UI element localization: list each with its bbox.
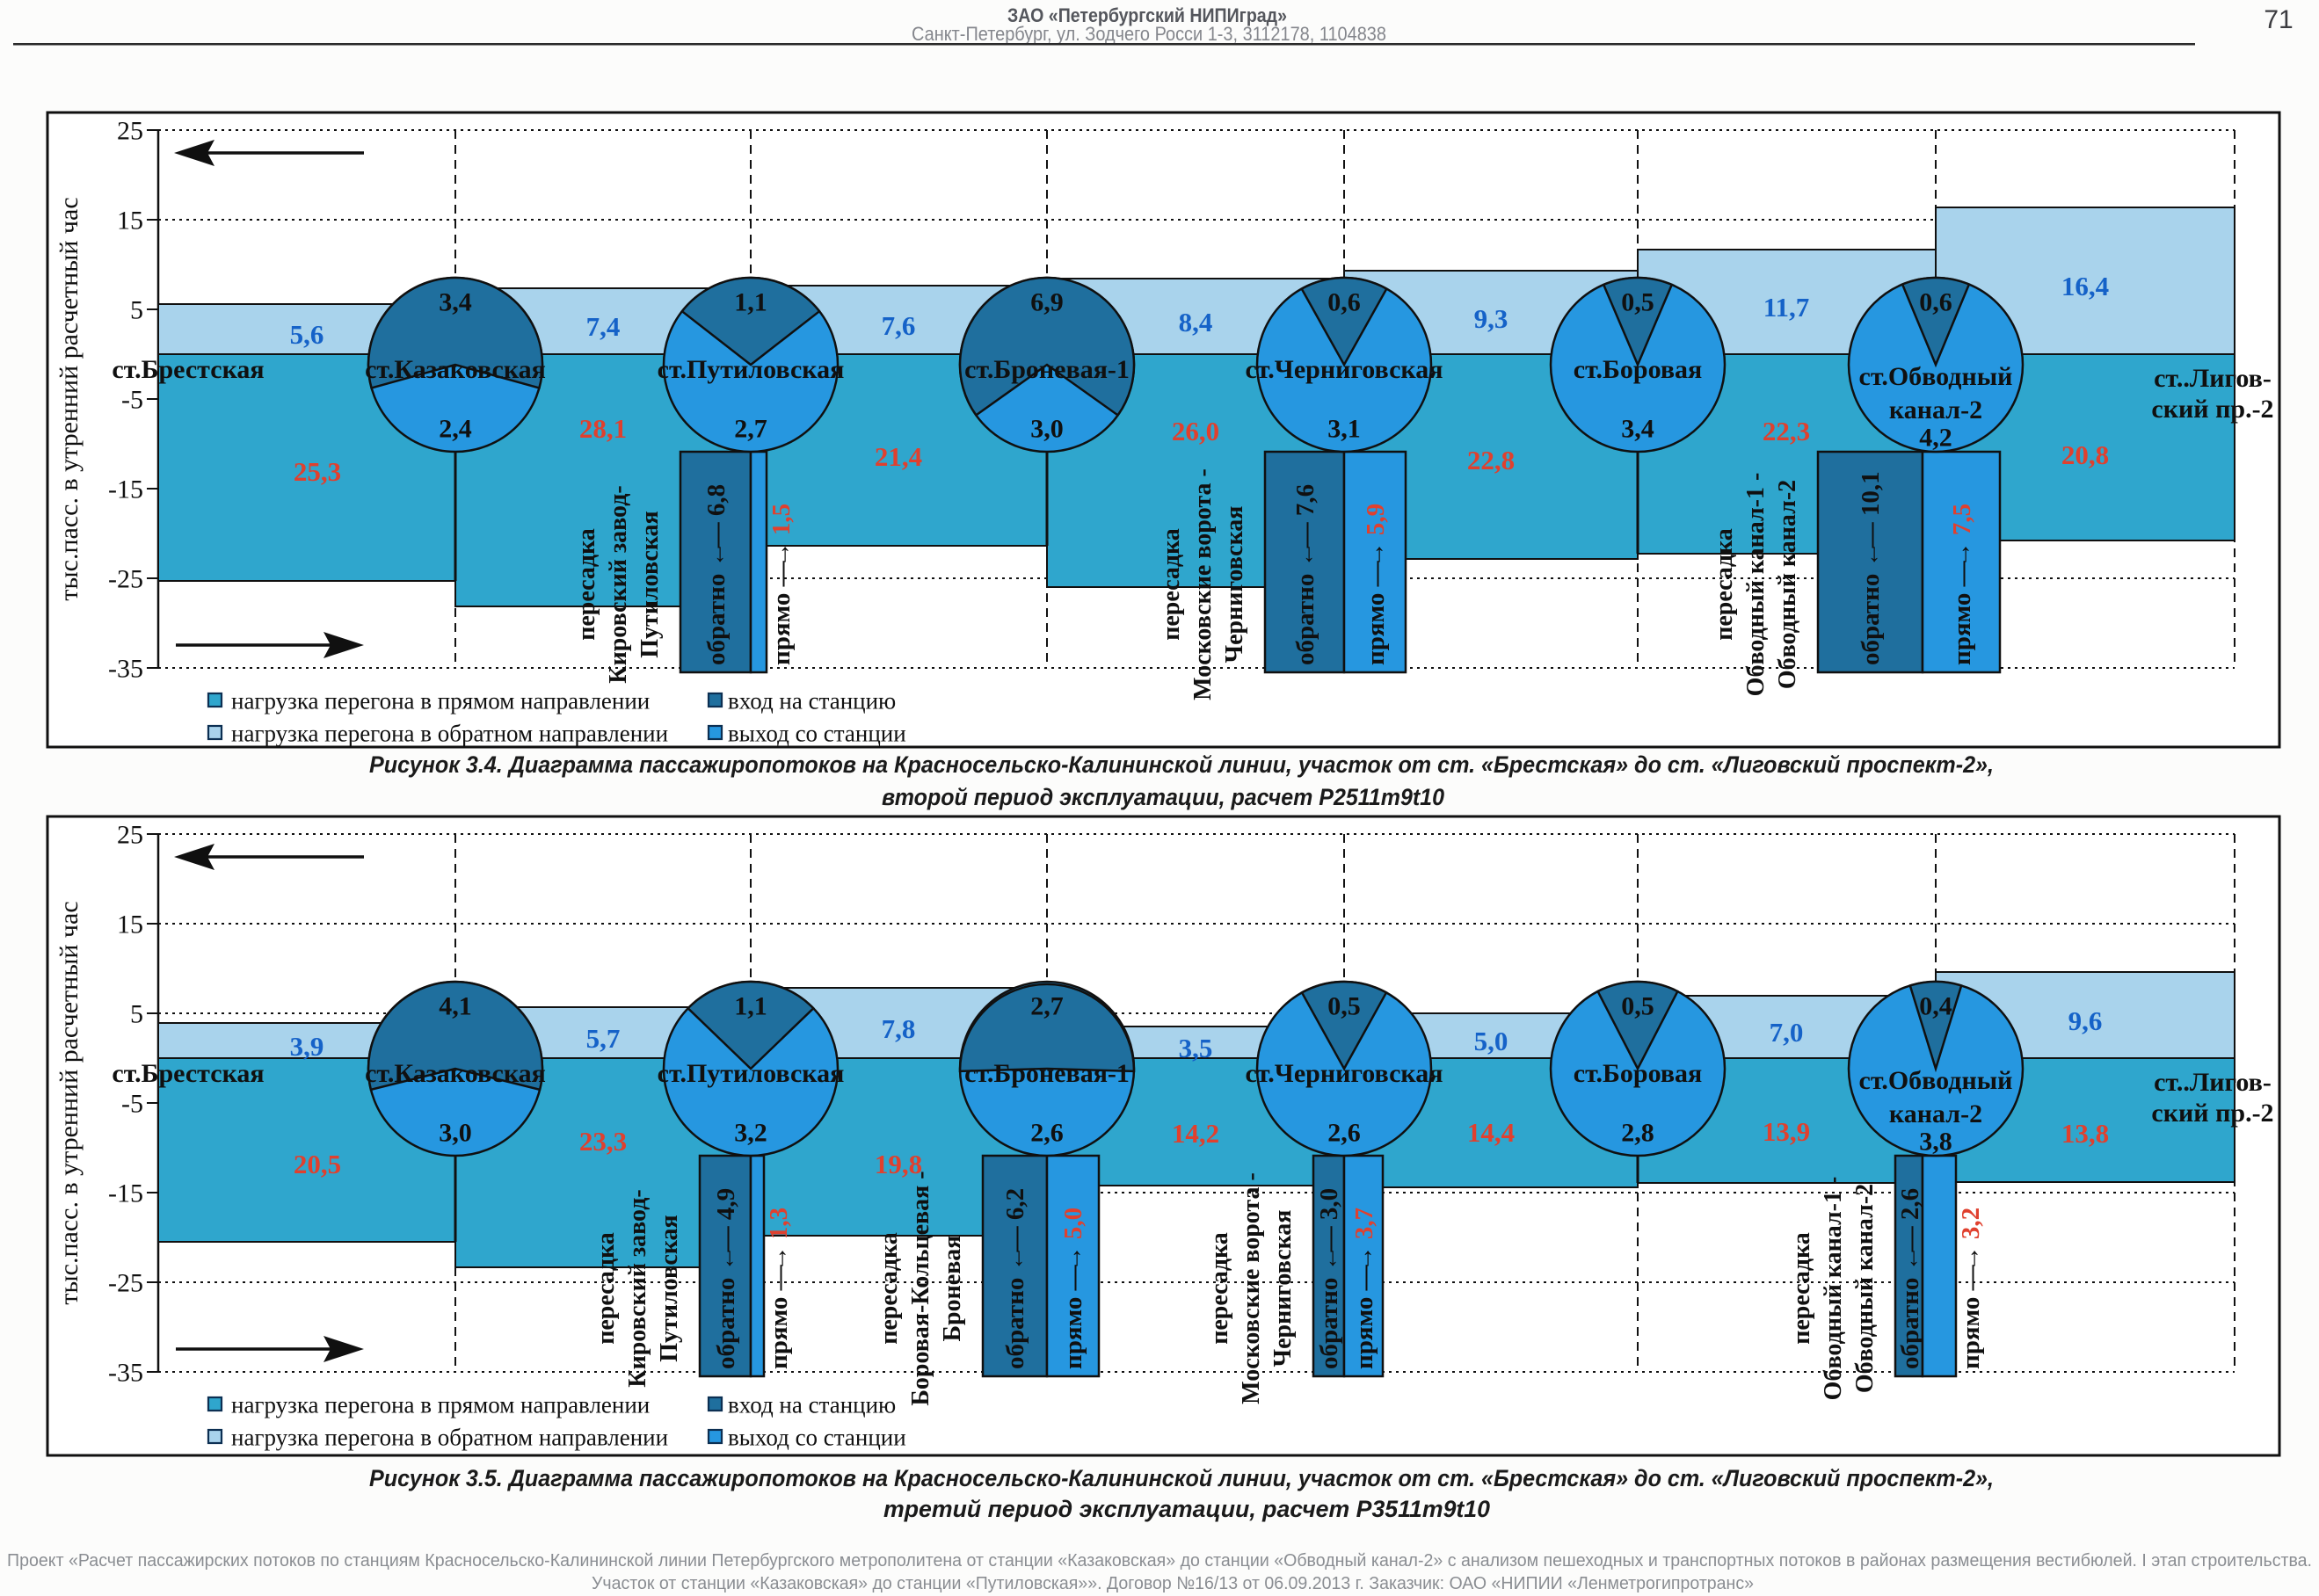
svg-text:20,5: 20,5 [294, 1149, 341, 1179]
svg-text:нагрузка перегона в прямом нап: нагрузка перегона в прямом направлении [231, 687, 650, 714]
svg-text:Черниговская: Черниговская [1269, 1210, 1297, 1367]
svg-text:ст.Обводный: ст.Обводный [1859, 1066, 2013, 1095]
svg-text:ст.Боровая: ст.Боровая [1574, 1059, 1703, 1088]
svg-text:71: 71 [2264, 5, 2293, 34]
svg-text:ст.Казаковская: ст.Казаковская [365, 355, 546, 384]
svg-text:11,7: 11,7 [1763, 292, 1810, 323]
svg-text:ст.Казаковская: ст.Казаковская [365, 1059, 546, 1088]
svg-text:13,8: 13,8 [2061, 1118, 2109, 1149]
svg-text:5: 5 [130, 296, 143, 325]
svg-text:пересадка: пересадка [573, 528, 600, 641]
svg-text:2,7: 2,7 [734, 415, 767, 444]
svg-text:1,1: 1,1 [734, 992, 767, 1021]
svg-text:Боровая-Кольцевая -: Боровая-Кольцевая - [907, 1171, 934, 1405]
svg-text:нагрузка перегона в прямом нап: нагрузка перегона в прямом направлении [231, 1391, 650, 1418]
svg-text:Санкт-Петербург, ул. Зодчего Р: Санкт-Петербург, ул. Зодчего Росси 1-3, … [912, 23, 1386, 45]
svg-text:0,6: 0,6 [1327, 288, 1361, 317]
svg-text:ст..Лигов-: ст..Лигов- [2154, 1068, 2272, 1097]
svg-text:обратно ←— 7,6: обратно ←— 7,6 [1291, 484, 1319, 665]
svg-text:Проект «Расчет пассажирских по: Проект «Расчет пассажирских потоков по с… [7, 1550, 2312, 1571]
svg-text:обратно ←— 2,6: обратно ←— 2,6 [1896, 1188, 1924, 1369]
svg-text:2,7: 2,7 [1030, 992, 1064, 1021]
svg-text:пересадка: пересадка [876, 1232, 903, 1345]
svg-text:выход со станции: выход со станции [728, 1424, 906, 1450]
svg-text:-5: -5 [121, 1090, 143, 1119]
svg-text:-35: -35 [108, 655, 143, 684]
svg-text:5: 5 [130, 1000, 143, 1029]
svg-text:3,4: 3,4 [439, 288, 472, 317]
svg-text:Московские ворота -: Московские ворота - [1189, 468, 1217, 700]
svg-text:23,3: 23,3 [579, 1126, 627, 1157]
svg-text:Обводный канал-2: Обводный канал-2 [1774, 480, 1801, 689]
svg-text:25,3: 25,3 [294, 456, 341, 487]
svg-text:2,4: 2,4 [439, 415, 472, 444]
svg-text:Рисунок 3.4. Диаграмма пассажи: Рисунок 3.4. Диаграмма пассажиропотоков … [369, 751, 1994, 778]
svg-text:5,0: 5,0 [1474, 1026, 1508, 1056]
svg-text:обратно ←— 6,8: обратно ←— 6,8 [702, 484, 731, 665]
svg-text:7,4: 7,4 [586, 311, 621, 342]
svg-text:выход со станции: выход со станции [728, 720, 906, 746]
svg-text:тыс.пасс. в утренний расчетный: тыс.пасс. в утренний расчетный час [55, 197, 84, 600]
svg-text:-15: -15 [108, 475, 143, 504]
svg-text:Путиловская: Путиловская [636, 511, 664, 657]
svg-text:25: 25 [117, 117, 143, 146]
svg-text:0,6: 0,6 [1919, 288, 1952, 317]
svg-text:14,2: 14,2 [1172, 1118, 1219, 1149]
svg-text:0,5: 0,5 [1327, 992, 1361, 1021]
svg-text:16,4: 16,4 [2061, 271, 2109, 301]
svg-text:ст.Броневая-1: ст.Броневая-1 [964, 355, 1130, 384]
svg-text:канал-2: канал-2 [1889, 1099, 1982, 1128]
svg-text:6,9: 6,9 [1030, 288, 1064, 317]
svg-text:28,1: 28,1 [579, 413, 627, 444]
svg-text:прямо —→ 7,5: прямо —→ 7,5 [1948, 504, 1976, 665]
svg-text:второй период эксплуатации, ра: второй период эксплуатации, расчет P2511… [882, 784, 1444, 810]
svg-text:3,9: 3,9 [290, 1031, 324, 1062]
svg-text:3,5: 3,5 [1179, 1033, 1213, 1063]
svg-text:ст.Броневая-1: ст.Броневая-1 [964, 1059, 1130, 1088]
svg-text:Черниговская: Черниговская [1221, 506, 1248, 664]
svg-text:7,0: 7,0 [1770, 1017, 1804, 1048]
svg-text:Кировский завод-: Кировский завод- [605, 485, 632, 683]
svg-text:прямо —→ 5,9: прямо —→ 5,9 [1362, 504, 1390, 665]
svg-text:9,6: 9,6 [2068, 1005, 2103, 1036]
svg-text:3,1: 3,1 [1327, 415, 1361, 444]
svg-text:0,4: 0,4 [1919, 992, 1952, 1021]
svg-text:1,1: 1,1 [734, 288, 767, 317]
svg-text:пересадка: пересадка [1788, 1232, 1815, 1345]
svg-text:ст.Путиловская: ст.Путиловская [658, 1059, 845, 1088]
svg-text:тыс.пасс. в утренний расчетный: тыс.пасс. в утренний расчетный час [55, 901, 84, 1304]
svg-text:22,3: 22,3 [1763, 416, 1810, 446]
svg-text:обратно ←— 3,0: обратно ←— 3,0 [1315, 1188, 1343, 1369]
svg-text:0,5: 0,5 [1621, 288, 1654, 317]
svg-text:прямо —→ 1,5: прямо —→ 1,5 [767, 504, 796, 665]
svg-text:вход на станцию: вход на станцию [728, 687, 896, 714]
svg-text:прямо —→ 3,7: прямо —→ 3,7 [1350, 1208, 1378, 1369]
svg-text:Обводный канал-1 -: Обводный канал-1 - [1820, 1177, 1847, 1401]
svg-text:Рисунок 3.5. Диаграмма пассажи: Рисунок 3.5. Диаграмма пассажиропотоков … [369, 1465, 1994, 1491]
svg-text:3,2: 3,2 [734, 1119, 767, 1148]
svg-text:-5: -5 [121, 386, 143, 415]
svg-text:Московские ворота -: Московские ворота - [1238, 1172, 1265, 1404]
svg-text:5,7: 5,7 [586, 1023, 621, 1054]
svg-text:15: 15 [117, 207, 143, 236]
svg-text:-35: -35 [108, 1359, 143, 1388]
svg-text:ст.Черниговская: ст.Черниговская [1246, 355, 1443, 384]
svg-text:прямо —→ 1,3: прямо —→ 1,3 [765, 1208, 793, 1369]
svg-text:2,6: 2,6 [1327, 1119, 1361, 1148]
svg-text:прямо —→ 3,2: прямо —→ 3,2 [1957, 1208, 1985, 1369]
svg-text:обратно ←— 10,1: обратно ←— 10,1 [1857, 471, 1885, 665]
svg-text:обратно ←— 4,9: обратно ←— 4,9 [712, 1188, 740, 1369]
svg-text:нагрузка перегона в обратном н: нагрузка перегона в обратном направлении [231, 720, 668, 746]
svg-text:22,8: 22,8 [1467, 445, 1515, 475]
svg-text:21,4: 21,4 [875, 441, 922, 472]
svg-text:ский пр.-2: ский пр.-2 [2151, 1099, 2273, 1128]
svg-text:3,4: 3,4 [1621, 415, 1654, 444]
svg-text:26,0: 26,0 [1172, 416, 1219, 446]
svg-text:ст.Брестская: ст.Брестская [112, 1059, 264, 1088]
svg-text:3,8: 3,8 [1919, 1128, 1952, 1157]
svg-text:2,8: 2,8 [1621, 1119, 1654, 1148]
svg-text:4,2: 4,2 [1919, 424, 1952, 453]
svg-text:9,3: 9,3 [1474, 303, 1508, 334]
svg-text:обратно ←— 6,2: обратно ←— 6,2 [1001, 1188, 1029, 1369]
svg-text:ст.Брестская: ст.Брестская [112, 355, 264, 384]
svg-text:прямо —→ 5,0: прямо —→ 5,0 [1059, 1208, 1087, 1369]
svg-text:-25: -25 [108, 565, 143, 594]
svg-text:ский пр.-2: ский пр.-2 [2151, 395, 2273, 424]
svg-text:2,6: 2,6 [1030, 1119, 1064, 1148]
svg-text:ст.Путиловская: ст.Путиловская [658, 355, 845, 384]
svg-text:3,0: 3,0 [1030, 415, 1064, 444]
svg-text:20,8: 20,8 [2061, 439, 2109, 470]
svg-text:Обводный канал-2: Обводный канал-2 [1851, 1184, 1879, 1393]
svg-text:3,0: 3,0 [439, 1119, 472, 1148]
svg-text:канал-2: канал-2 [1889, 395, 1982, 424]
svg-text:-15: -15 [108, 1179, 143, 1208]
svg-text:Путиловская: Путиловская [656, 1215, 683, 1361]
svg-text:пересадка: пересадка [1711, 528, 1738, 641]
svg-text:нагрузка перегона в обратном н: нагрузка перегона в обратном направлении [231, 1424, 668, 1450]
svg-text:пересадка: пересадка [1206, 1232, 1233, 1345]
svg-text:14,4: 14,4 [1467, 1117, 1515, 1148]
svg-text:7,6: 7,6 [882, 310, 916, 341]
svg-text:третий период эксплуатации, ра: третий период эксплуатации, расчет P3511… [883, 1496, 1490, 1522]
svg-text:пересадка: пересадка [1158, 528, 1185, 641]
svg-text:Участок от станции «Казаковска: Участок от станции «Казаковская» до стан… [592, 1573, 1754, 1593]
svg-text:ст.Обводный: ст.Обводный [1859, 362, 2013, 391]
svg-text:15: 15 [117, 910, 143, 939]
svg-text:4,1: 4,1 [439, 992, 472, 1021]
svg-text:-25: -25 [108, 1269, 143, 1298]
svg-text:7,8: 7,8 [882, 1013, 916, 1044]
svg-text:8,4: 8,4 [1179, 307, 1213, 337]
svg-text:Кировский завод-: Кировский завод- [624, 1189, 651, 1387]
svg-text:ст.Боровая: ст.Боровая [1574, 355, 1703, 384]
svg-text:пересадка: пересадка [592, 1232, 620, 1345]
svg-text:ст.Черниговская: ст.Черниговская [1246, 1059, 1443, 1088]
svg-text:Обводный канал-1 -: Обводный канал-1 - [1742, 473, 1770, 697]
svg-text:0,5: 0,5 [1621, 992, 1654, 1021]
svg-text:ст..Лигов-: ст..Лигов- [2154, 364, 2272, 393]
svg-text:5,6: 5,6 [290, 319, 324, 350]
svg-text:13,9: 13,9 [1763, 1116, 1810, 1147]
svg-text:25: 25 [117, 821, 143, 850]
svg-text:вход на станцию: вход на станцию [728, 1391, 896, 1418]
svg-text:Броневая: Броневая [939, 1236, 966, 1342]
